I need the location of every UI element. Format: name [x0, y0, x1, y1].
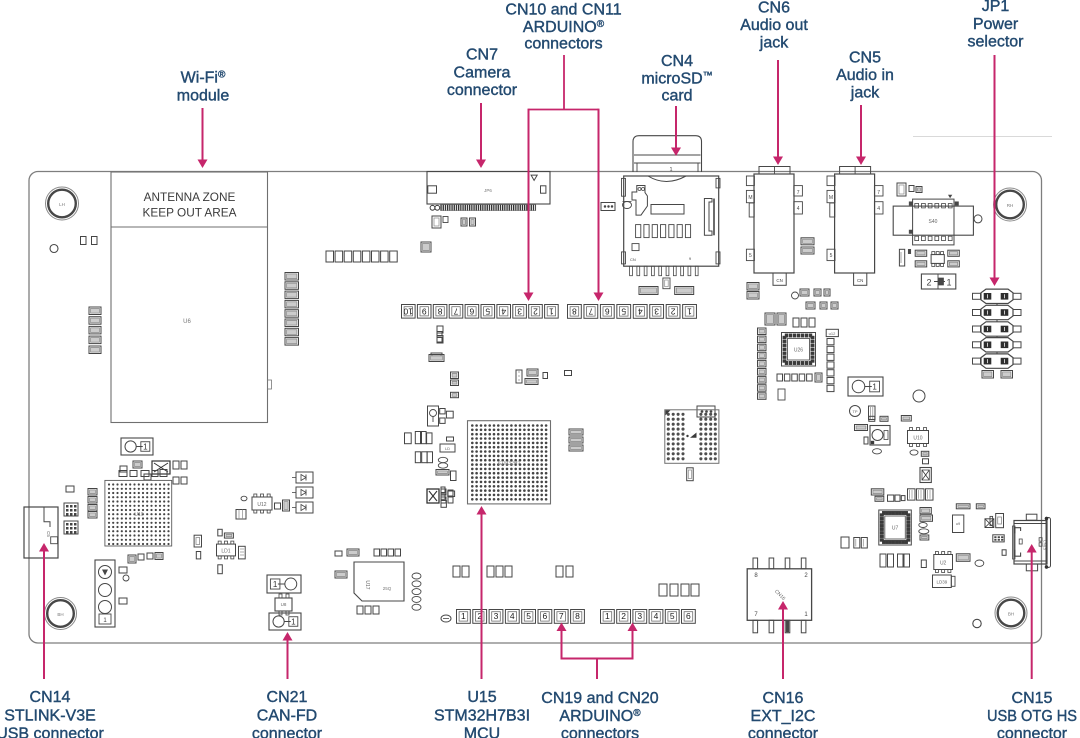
svg-text:U8: U8 — [281, 602, 287, 607]
svg-text:CN4: CN4 — [661, 53, 693, 70]
svg-text:8: 8 — [572, 307, 577, 317]
svg-text:RH: RH — [1007, 203, 1014, 208]
svg-text:25Q: 25Q — [383, 586, 392, 591]
svg-text:connectors: connectors — [524, 36, 602, 53]
svg-text:6: 6 — [469, 306, 474, 316]
svg-text:1: 1 — [687, 307, 692, 317]
svg-text:4: 4 — [877, 206, 880, 212]
svg-text:STM32H7: STM32H7 — [498, 461, 521, 467]
svg-text:ANTENNA ZONE: ANTENNA ZONE — [144, 190, 236, 204]
svg-text:9: 9 — [422, 306, 427, 316]
svg-text:1: 1 — [946, 278, 951, 288]
svg-text:3: 3 — [637, 611, 642, 621]
svg-text:1: 1 — [143, 443, 148, 452]
svg-text:connector: connector — [748, 726, 819, 738]
svg-text:5: 5 — [621, 307, 626, 317]
svg-text:CN7: CN7 — [466, 47, 498, 64]
svg-text:U10: U10 — [134, 512, 143, 518]
svg-text:LH: LH — [59, 202, 65, 207]
svg-text:selector: selector — [967, 34, 1024, 51]
svg-text:connectors: connectors — [561, 726, 639, 738]
svg-text:3: 3 — [654, 307, 659, 317]
svg-text:Camera: Camera — [454, 64, 511, 81]
svg-text:ARDUINO®: ARDUINO® — [559, 708, 641, 725]
svg-text:Power: Power — [973, 16, 1019, 33]
svg-text:7: 7 — [877, 190, 880, 196]
svg-text:1: 1 — [872, 383, 877, 392]
svg-text:JP1: JP1 — [982, 0, 1010, 15]
svg-text:CN14: CN14 — [30, 689, 71, 706]
svg-text:CN15: CN15 — [1012, 690, 1053, 707]
svg-text:BH: BH — [57, 612, 63, 617]
svg-text:U2: U2 — [940, 561, 947, 567]
svg-text:7: 7 — [588, 307, 593, 317]
svg-text:4: 4 — [510, 611, 515, 621]
svg-text:U15: U15 — [467, 689, 496, 706]
svg-text:M: M — [748, 195, 752, 201]
svg-text:4: 4 — [654, 611, 659, 621]
svg-text:STM32H7B3I: STM32H7B3I — [434, 708, 530, 725]
svg-text:U6: U6 — [183, 319, 191, 325]
svg-text:7: 7 — [797, 190, 800, 196]
svg-text:5: 5 — [830, 253, 833, 259]
svg-text:CN: CN — [857, 278, 864, 283]
svg-text:6: 6 — [686, 611, 691, 621]
svg-text:2: 2 — [621, 611, 626, 621]
svg-text:4: 4 — [797, 206, 800, 212]
svg-text:STLINK-V3E: STLINK-V3E — [4, 708, 96, 725]
svg-text:ARDUINO®: ARDUINO® — [523, 19, 605, 36]
svg-text:1: 1 — [273, 580, 278, 589]
svg-text:USB connector: USB connector — [0, 726, 104, 738]
svg-text:M: M — [829, 195, 833, 201]
svg-text:U26: U26 — [794, 347, 803, 353]
svg-text:3: 3 — [494, 611, 499, 621]
svg-text:6: 6 — [543, 611, 548, 621]
svg-text:u9: u9 — [956, 521, 961, 526]
svg-text:1: 1 — [669, 167, 672, 173]
svg-text:Audio in: Audio in — [836, 67, 894, 84]
svg-text:U12: U12 — [257, 502, 266, 508]
svg-text:1: 1 — [291, 618, 296, 627]
svg-text:MCU: MCU — [464, 726, 500, 738]
svg-text:BH: BH — [1008, 612, 1014, 617]
svg-text:LD1: LD1 — [221, 549, 230, 555]
svg-text:LD39: LD39 — [937, 580, 948, 585]
svg-text:2: 2 — [670, 307, 675, 317]
svg-text:connector: connector — [447, 82, 518, 99]
svg-text:U7: U7 — [892, 526, 899, 532]
svg-text:5: 5 — [749, 253, 752, 259]
svg-text:10: 10 — [403, 306, 413, 316]
svg-text:1: 1 — [461, 611, 466, 621]
svg-text:1: 1 — [605, 611, 610, 621]
svg-text:5: 5 — [670, 611, 675, 621]
svg-text:EXT_I2C: EXT_I2C — [751, 708, 816, 725]
svg-text:CN15: CN15 — [1043, 540, 1048, 551]
svg-text:U10: U10 — [913, 436, 922, 442]
svg-text:8: 8 — [437, 306, 442, 316]
svg-text:CN10 and CN11: CN10 and CN11 — [505, 2, 621, 19]
svg-text:U17: U17 — [364, 580, 370, 589]
svg-text:3: 3 — [517, 306, 522, 316]
svg-text:jack: jack — [759, 34, 789, 51]
svg-text:CN: CN — [776, 278, 783, 283]
svg-text:microSD™: microSD™ — [641, 70, 712, 87]
svg-text:2: 2 — [533, 306, 538, 316]
svg-text:6: 6 — [605, 307, 610, 317]
svg-text:CN19 and CN20: CN19 and CN20 — [541, 690, 659, 707]
svg-text:CAN-FD: CAN-FD — [257, 708, 317, 725]
svg-text:5: 5 — [485, 306, 490, 316]
svg-text:KEEP OUT AREA: KEEP OUT AREA — [143, 206, 237, 220]
svg-text:USB OTG HS: USB OTG HS — [987, 708, 1077, 725]
svg-text:7: 7 — [453, 306, 458, 316]
svg-text:connector: connector — [997, 726, 1068, 738]
svg-text:card: card — [661, 87, 692, 104]
svg-text:2: 2 — [926, 278, 931, 288]
svg-text:CN16: CN16 — [763, 690, 804, 707]
svg-text:4: 4 — [501, 306, 506, 316]
svg-text:1: 1 — [549, 306, 554, 316]
svg-text:CN5: CN5 — [849, 50, 881, 67]
svg-text:jack: jack — [850, 84, 880, 101]
svg-text:TP: TP — [852, 409, 857, 414]
svg-text:CN6: CN6 — [758, 0, 790, 17]
svg-text:JP6: JP6 — [484, 188, 492, 193]
svg-text:4: 4 — [638, 307, 643, 317]
svg-text:8: 8 — [575, 611, 580, 621]
svg-text:5: 5 — [526, 611, 531, 621]
svg-text:Audio out: Audio out — [740, 17, 808, 34]
svg-text:S40: S40 — [929, 219, 938, 225]
svg-text:C5: C5 — [46, 531, 51, 537]
svg-text:LD: LD — [445, 446, 450, 451]
svg-text:CN: CN — [630, 257, 636, 262]
svg-text:u12: u12 — [829, 331, 836, 336]
svg-text:module: module — [177, 87, 230, 104]
svg-text:connector: connector — [252, 726, 323, 738]
svg-text:7: 7 — [559, 611, 564, 621]
svg-text:CN21: CN21 — [267, 689, 308, 706]
